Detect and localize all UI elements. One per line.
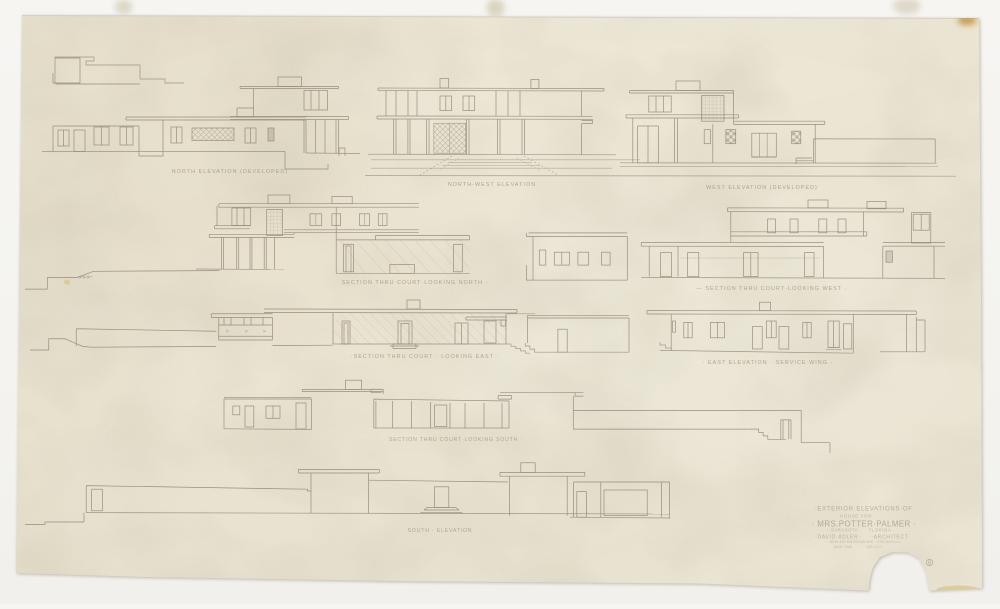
svg-text:·HOUSE FOR·: ·HOUSE FOR· [838,514,874,519]
svg-text:SOUTH · ELEVATION: SOUTH · ELEVATION [408,528,473,534]
svg-text:SECTION THRU COURT·LOOKING NOR: SECTION THRU COURT·LOOKING NORTH · [342,280,489,286]
svg-text:NORTH-WEST ELEVATION: NORTH-WEST ELEVATION [448,182,536,188]
svg-text:NORTH ELEVATION (DEVELOPED): NORTH ELEVATION (DEVELOPED) [172,169,288,175]
svg-text:JUNE·1946 1/8″=1′-0: JUNE·1946 1/8″=1′-0″ [833,545,884,549]
svg-text:8: 8 [928,561,931,567]
svg-text:— SECTION THRU COURT·LOOKING W: — SECTION THRU COURT·LOOKING WEST · [696,286,847,292]
svg-text:· SARASOTA FLORIDA ·: · SARASOTA FLORIDA · [827,527,895,532]
svg-text:NEW 400 MICHIGAN AVE · CHICAGO: NEW 400 MICHIGAN AVE · CHICAGO·ILL· [830,540,902,544]
svg-text:·EXTERIOR·ELEVATIONS·OF·: ·EXTERIOR·ELEVATIONS·OF· [815,506,916,512]
svg-text:SECTION THRU COURT·LOOKING SOU: SECTION THRU COURT·LOOKING SOUTH · [389,437,523,443]
svg-text:·SECTION THRU COURT · LOOKING: ·SECTION THRU COURT · LOOKING EAST · [351,354,500,360]
svg-text:WEST ELEVATION (DEVELOPED): WEST ELEVATION (DEVELOPED) [706,185,818,191]
svg-text:· EAST ELEVATION · SERVICE WIN: · EAST ELEVATION · SERVICE WING · [703,360,834,366]
